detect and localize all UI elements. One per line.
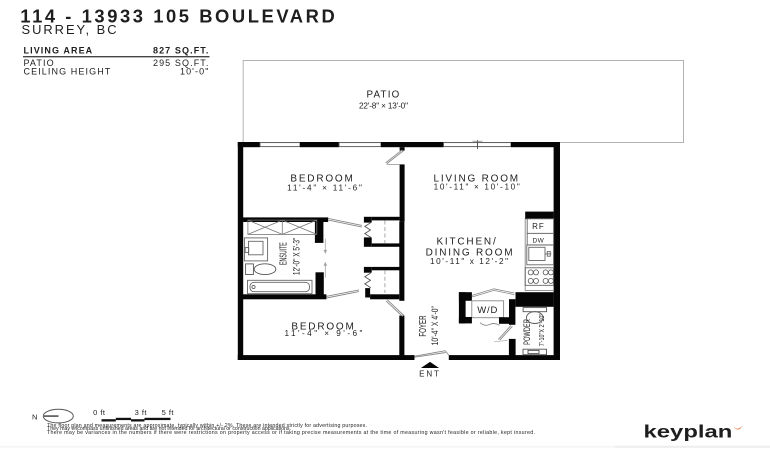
svg-text:CEILING HEIGHT: CEILING HEIGHT [24, 67, 112, 77]
svg-text:SURREY, BC: SURREY, BC [22, 22, 119, 37]
svg-text:ENSUITE: ENSUITE [276, 242, 289, 265]
svg-text:keyplan: keyplan [644, 422, 733, 441]
svg-text:22'-8" × 13'-0": 22'-8" × 13'-0" [359, 101, 408, 110]
svg-text:10'-11" × 10'-10": 10'-11" × 10'-10" [434, 183, 520, 192]
svg-text:10'-0": 10'-0" [180, 67, 210, 77]
svg-text:7'-10"X 2'-10": 7'-10"X 2'-10" [538, 313, 546, 346]
svg-text:LIVING AREA: LIVING AREA [24, 46, 94, 56]
svg-text:0 ft: 0 ft [93, 408, 106, 417]
svg-text:ENT: ENT [419, 369, 441, 378]
svg-text:There may be variances in the: There may be variances in the numbers if… [47, 430, 535, 436]
svg-text:W/D: W/D [477, 305, 498, 316]
svg-text:FOYER: FOYER [416, 315, 428, 336]
svg-text:10'-11" x 12'-2": 10'-11" x 12'-2" [430, 257, 508, 266]
svg-text:5 ft: 5 ft [162, 408, 175, 417]
svg-text:3 ft: 3 ft [135, 408, 148, 417]
svg-text:10'-4" X 4'-0": 10'-4" X 4'-0" [430, 306, 440, 345]
svg-text:827 SQ.FT.: 827 SQ.FT. [153, 46, 210, 56]
svg-text:12'-0" X 5'-3": 12'-0" X 5'-3" [291, 238, 301, 276]
svg-text:PATIO: PATIO [367, 90, 401, 101]
svg-text:KITCHEN/: KITCHEN/ [436, 237, 497, 248]
svg-text:RF: RF [532, 222, 545, 231]
svg-text:N: N [32, 413, 37, 422]
svg-text:POWDER: POWDER [522, 319, 533, 345]
svg-text:DW: DW [532, 237, 544, 244]
svg-text:11'-4" × 11'-6": 11'-4" × 11'-6" [287, 183, 362, 192]
